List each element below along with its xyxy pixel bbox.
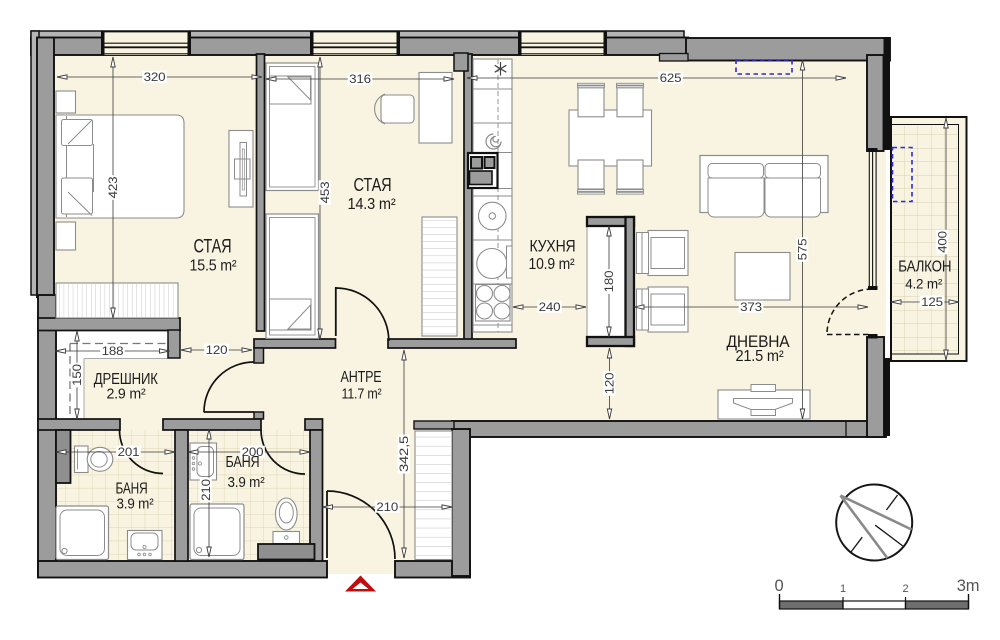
svg-text:125: 125	[921, 297, 943, 309]
svg-text:210: 210	[376, 502, 398, 514]
svg-text:10.9 m²: 10.9 m²	[529, 256, 575, 273]
svg-text:4.2 m²: 4.2 m²	[905, 276, 943, 292]
svg-text:БАНЯ: БАНЯ	[116, 481, 148, 498]
svg-text:188: 188	[102, 346, 124, 358]
svg-text:БАНЯ: БАНЯ	[226, 454, 260, 471]
svg-text:КУХНЯ: КУХНЯ	[530, 237, 576, 256]
svg-text:400: 400	[937, 231, 949, 253]
svg-text:ДРЕШНИК: ДРЕШНИК	[94, 371, 159, 388]
svg-text:120: 120	[604, 373, 616, 395]
svg-text:0: 0	[775, 577, 784, 595]
svg-text:3.9 m²: 3.9 m²	[117, 497, 154, 513]
svg-text:11.7 m²: 11.7 m²	[342, 387, 382, 403]
svg-text:575: 575	[797, 239, 809, 261]
svg-text:3m: 3m	[957, 577, 980, 595]
svg-text:320: 320	[144, 72, 166, 84]
svg-text:2.9 m²: 2.9 m²	[107, 387, 146, 403]
svg-text:180: 180	[604, 271, 616, 293]
svg-text:14.3 m²: 14.3 m²	[348, 196, 396, 213]
svg-text:1: 1	[840, 583, 846, 595]
svg-text:СТАЯ: СТАЯ	[354, 175, 392, 195]
svg-text:21.5 m²: 21.5 m²	[736, 348, 784, 365]
svg-text:373: 373	[740, 302, 762, 314]
svg-text:453: 453	[320, 182, 332, 204]
svg-text:240: 240	[539, 302, 561, 314]
svg-text:201: 201	[118, 447, 140, 459]
svg-text:342,5: 342,5	[399, 436, 411, 472]
svg-text:СТАЯ: СТАЯ	[194, 237, 232, 258]
svg-text:15.5 m²: 15.5 m²	[190, 258, 237, 275]
svg-text:625: 625	[660, 73, 682, 85]
svg-text:2: 2	[903, 583, 909, 595]
svg-text:210: 210	[201, 479, 213, 501]
svg-text:423: 423	[108, 177, 120, 199]
svg-text:3.9 m²: 3.9 m²	[228, 475, 265, 491]
svg-text:БАЛКОН: БАЛКОН	[898, 259, 951, 276]
svg-text:150: 150	[72, 364, 84, 386]
svg-text:120: 120	[206, 345, 228, 357]
svg-text:316: 316	[349, 74, 371, 86]
svg-text:АНТРЕ: АНТРЕ	[341, 369, 382, 386]
